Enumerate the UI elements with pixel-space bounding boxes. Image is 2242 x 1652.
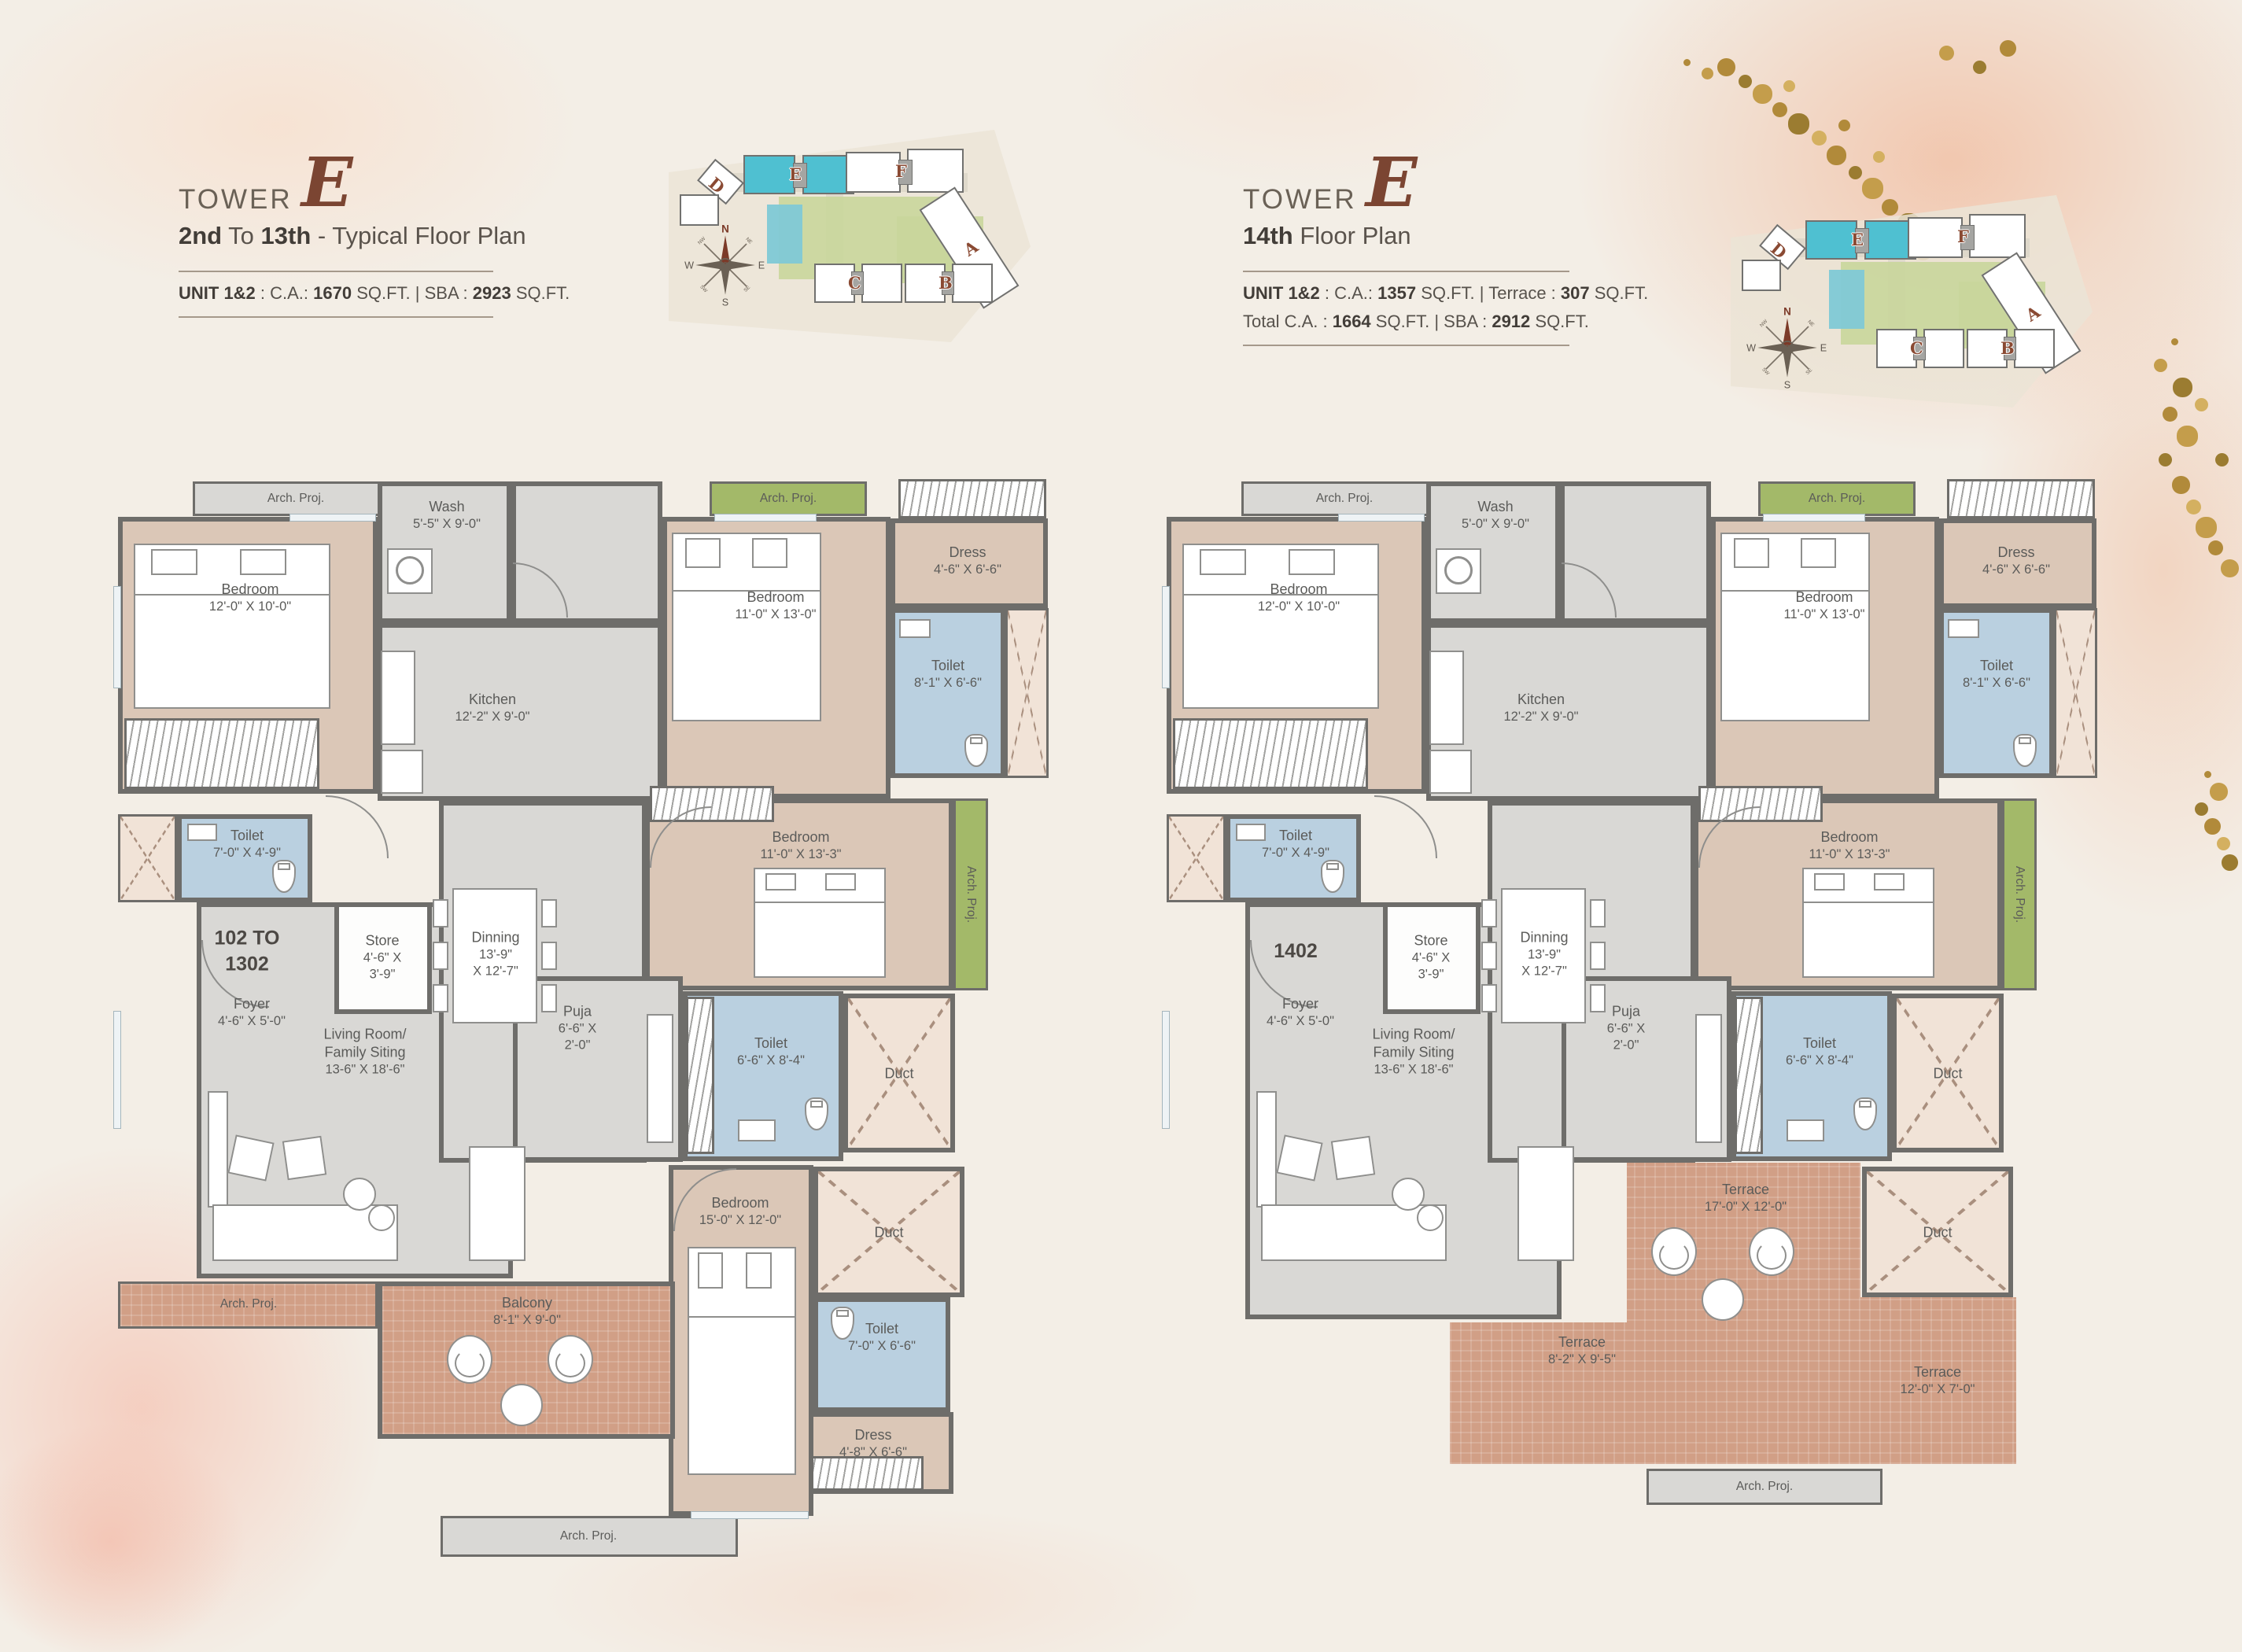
left-area-stats: UNIT 1&2 : C.A.: 1670 SQ.FT. | SBA : 292… bbox=[179, 283, 570, 304]
toilet-mid-label: Toilet6'-6" X 8'-4" bbox=[737, 1034, 805, 1069]
toilet-master-label: Toilet8'-1" X 6'-6" bbox=[1963, 657, 2030, 691]
armchair bbox=[1276, 1134, 1322, 1181]
dining-chair bbox=[541, 899, 557, 927]
right-divider-top bbox=[1243, 271, 1569, 272]
tower-f-block bbox=[1969, 214, 2026, 258]
tower-e-label: E bbox=[1851, 230, 1864, 249]
bed bbox=[1802, 868, 1934, 978]
compass-w: W bbox=[1746, 343, 1756, 354]
right-plan-header: TOWER E 14th Floor Plan UNIT 1&2 : C.A.:… bbox=[1243, 167, 1613, 356]
bed bbox=[134, 544, 330, 709]
armchair bbox=[282, 1136, 326, 1180]
lounge-chair bbox=[447, 1335, 492, 1384]
window bbox=[1162, 586, 1170, 688]
terrace-side-label: Terrace12'-0" X 7'-0" bbox=[1900, 1363, 1975, 1398]
shaft bbox=[2054, 608, 2097, 778]
right-tower-letter: E bbox=[1366, 143, 1418, 223]
door-swing bbox=[326, 795, 389, 858]
dining-chair bbox=[1590, 984, 1606, 1012]
lounge-chair bbox=[548, 1335, 593, 1384]
compass-rose-icon: N S W E NW NE SW SE bbox=[683, 223, 768, 308]
dining-chair bbox=[1590, 899, 1606, 927]
lounge-chair bbox=[1749, 1227, 1794, 1276]
living-room-label: Living Room/ Family Siting13-6" X 18'-6" bbox=[1372, 1025, 1455, 1078]
round-table bbox=[1702, 1278, 1744, 1321]
door-swing bbox=[1374, 795, 1437, 858]
dining-chair bbox=[1481, 899, 1497, 927]
foyer-label: Foyer4'-6" X 5'-0" bbox=[218, 995, 286, 1030]
wardrobe bbox=[1173, 718, 1368, 789]
tower-d-block bbox=[680, 194, 719, 226]
right-plan-subtitle: 14th Floor Plan bbox=[1243, 222, 1411, 250]
tower-b-label: B bbox=[2000, 338, 2015, 358]
bedroom-2-label: Bedroom11'-0" X 13'-0" bbox=[735, 588, 816, 623]
side-table bbox=[343, 1178, 376, 1211]
arch-proj-label: Arch. Proj. bbox=[267, 491, 324, 507]
right-area-stats-1: UNIT 1&2 : C.A.: 1357 SQ.FT. | Terrace :… bbox=[1243, 283, 1648, 304]
tower-b-block bbox=[952, 264, 993, 303]
puja-cabinet bbox=[1695, 1014, 1722, 1143]
tower-e-block-highlighted bbox=[743, 155, 795, 194]
bed bbox=[688, 1247, 796, 1475]
dining-chair bbox=[433, 984, 448, 1012]
tv-unit bbox=[1256, 1091, 1277, 1208]
left-plan-header: TOWER E 2nd To 13th - Typical Floor Plan… bbox=[179, 167, 548, 356]
compass-rose-icon: N S W E NW NE SW SE bbox=[1745, 305, 1830, 390]
tv-unit bbox=[208, 1091, 228, 1208]
brochure-page: TOWER E 2nd To 13th - Typical Floor Plan… bbox=[0, 0, 2242, 1652]
wardrobe bbox=[806, 1456, 924, 1491]
bedroom-3-label: Bedroom11'-0" X 13'-3" bbox=[760, 828, 841, 863]
tower-c-block bbox=[861, 264, 902, 303]
window bbox=[1338, 514, 1425, 522]
compass-se: SE bbox=[743, 285, 751, 293]
dining-chair bbox=[541, 984, 557, 1012]
compass-sw: SW bbox=[1761, 367, 1770, 376]
compass-e: E bbox=[1820, 343, 1827, 354]
site-pool bbox=[1829, 270, 1864, 329]
arch-proj-label: Arch. Proj. bbox=[2012, 866, 2027, 923]
arch-proj-label: Arch. Proj. bbox=[1736, 1479, 1793, 1495]
window bbox=[1162, 1011, 1170, 1129]
wash-label: Wash5'-0" X 9'-0" bbox=[1462, 498, 1529, 533]
dining-chair bbox=[1590, 942, 1606, 970]
dinning-label: Dinning13'-9" X 12'-7" bbox=[1520, 928, 1568, 979]
dinning-label: Dinning13'-9" X 12'-7" bbox=[471, 928, 519, 979]
tower-b-label: B bbox=[938, 273, 953, 293]
arch-proj-label: Arch. Proj. bbox=[963, 866, 979, 923]
lounge-chair bbox=[1651, 1227, 1697, 1276]
balcony-label: Balcony8'-1" X 9'-0" bbox=[493, 1294, 561, 1329]
left-tower-letter: E bbox=[301, 143, 353, 223]
right-divider-bottom bbox=[1243, 345, 1569, 346]
window bbox=[113, 586, 121, 688]
toilet-mid-label: Toilet6'-6" X 8'-4" bbox=[1786, 1034, 1853, 1069]
compass-e: E bbox=[758, 260, 765, 271]
living-room-label: Living Room/ Family Siting13-6" X 18'-6" bbox=[323, 1025, 406, 1078]
arch-proj-label: Arch. Proj. bbox=[560, 1528, 617, 1544]
kitchen-label: Kitchen12'-2" X 9'-0" bbox=[455, 691, 529, 725]
window bbox=[714, 514, 817, 522]
toilet-common-label: Toilet7'-0" X 4'-9" bbox=[1262, 827, 1329, 861]
kitchen-stove bbox=[1429, 750, 1472, 794]
dress-1-label: Dress4'-6" X 6'-6" bbox=[1982, 544, 2050, 578]
unit-number: 1402 bbox=[1274, 938, 1318, 964]
dining-chair bbox=[433, 899, 448, 927]
shaft bbox=[1005, 608, 1049, 778]
left-plan-subtitle: 2nd To 13th - Typical Floor Plan bbox=[179, 222, 526, 250]
window bbox=[691, 1511, 809, 1519]
armchair bbox=[1331, 1136, 1375, 1180]
duct-label: Duct bbox=[884, 1064, 913, 1082]
kitchen-counter bbox=[381, 651, 415, 745]
bed bbox=[1182, 544, 1379, 709]
unit-number: 102 TO 1302 bbox=[215, 926, 280, 977]
dining-chair bbox=[433, 942, 448, 970]
wardrobe bbox=[1947, 479, 2095, 518]
compass-n: N bbox=[721, 223, 729, 235]
left-divider-bottom bbox=[179, 316, 493, 318]
site-pool bbox=[767, 205, 802, 264]
tower-c-label: C bbox=[848, 273, 861, 293]
toilet-master-label: Toilet8'-1" X 6'-6" bbox=[914, 657, 982, 691]
arch-proj-label: Arch. Proj. bbox=[760, 491, 817, 507]
bedroom-3-label: Bedroom11'-0" X 13'-3" bbox=[1809, 828, 1890, 863]
window bbox=[289, 514, 376, 522]
duct-label: Duct bbox=[1933, 1064, 1962, 1082]
round-table bbox=[500, 1384, 543, 1426]
tower-f-label: F bbox=[1957, 227, 1969, 246]
sofa bbox=[1517, 1146, 1574, 1261]
compass-sw: SW bbox=[699, 284, 708, 293]
toilet-bed4-label: Toilet7'-0" X 6'-6" bbox=[848, 1320, 916, 1355]
site-key-map-right: D E F A C B N S W E NW bbox=[1731, 195, 2093, 407]
compass-s: S bbox=[722, 297, 728, 308]
dress-1-label: Dress4'-6" X 6'-6" bbox=[934, 544, 1001, 578]
puja-cabinet bbox=[647, 1014, 673, 1143]
tower-f-block bbox=[846, 152, 901, 193]
shower-screen bbox=[1735, 997, 1763, 1154]
tower-f-block bbox=[907, 149, 964, 193]
tower-d-block bbox=[1742, 260, 1781, 291]
shower-screen bbox=[686, 997, 714, 1154]
gold-foliage-top-right bbox=[1683, 59, 1691, 66]
right-tower-title: TOWER bbox=[1243, 184, 1357, 216]
side-table bbox=[368, 1204, 395, 1231]
tower-f-block bbox=[1908, 217, 1963, 258]
terrace-bottom-label: Terrace8'-2" X 9'-5" bbox=[1548, 1333, 1616, 1368]
gold-foliage-right-edge bbox=[2171, 338, 2178, 345]
bedroom-2-label: Bedroom11'-0" X 13'-0" bbox=[1783, 588, 1864, 623]
arch-proj-label: Arch. Proj. bbox=[1809, 491, 1865, 507]
bed bbox=[672, 533, 821, 721]
compass-n: N bbox=[1783, 306, 1791, 318]
dress-2-label: Dress4'-8" X 6'-6" bbox=[839, 1426, 907, 1461]
wash-basin bbox=[1787, 1119, 1824, 1141]
dining-chair bbox=[1481, 942, 1497, 970]
tower-e-block-highlighted bbox=[1805, 220, 1857, 260]
window bbox=[113, 1011, 121, 1129]
tower-f-label: F bbox=[895, 161, 907, 181]
bed bbox=[1720, 533, 1870, 721]
compass-s: S bbox=[1784, 379, 1790, 390]
toilet-common-label: Toilet7'-0" X 4'-9" bbox=[213, 827, 281, 861]
duct-label: Duct bbox=[874, 1223, 903, 1241]
dining-chair bbox=[541, 942, 557, 970]
duct-label: Duct bbox=[1923, 1223, 1952, 1241]
wardrobe bbox=[650, 786, 774, 822]
arch-proj-label: Arch. Proj. bbox=[1316, 491, 1373, 507]
washing-machine bbox=[387, 548, 433, 594]
gold-foliage-right-mid bbox=[2204, 771, 2211, 778]
wardrobe bbox=[898, 479, 1046, 518]
flue-shaft bbox=[118, 814, 177, 902]
bedroom-1-label: Bedroom12'-0" X 10'-0" bbox=[209, 581, 291, 615]
compass-se: SE bbox=[1805, 367, 1813, 376]
kitchen-label: Kitchen12'-2" X 9'-0" bbox=[1503, 691, 1578, 725]
kitchen-stove bbox=[381, 750, 423, 794]
puja-label: Puja6'-6" X 2'-0" bbox=[1607, 1002, 1645, 1053]
site-key-map-left: D E F A C B N S W E NW bbox=[669, 130, 1031, 342]
tower-e-label: E bbox=[789, 164, 802, 184]
left-divider-top bbox=[179, 271, 493, 272]
right-area-stats-2: Total C.A. : 1664 SQ.FT. | SBA : 2912 SQ… bbox=[1243, 312, 1589, 332]
kitchen-counter bbox=[1429, 651, 1464, 745]
store-label: Store4'-6" X 3'-9" bbox=[363, 931, 401, 983]
store-label: Store4'-6" X 3'-9" bbox=[1412, 931, 1450, 983]
wash-label: Wash5'-5" X 9'-0" bbox=[413, 498, 481, 533]
flue-shaft bbox=[1167, 814, 1226, 902]
bedroom-4-label: Bedroom15'-0" X 12'-0" bbox=[699, 1194, 781, 1229]
compass-w: W bbox=[684, 260, 694, 271]
wardrobe bbox=[124, 718, 319, 789]
foyer-label: Foyer4'-6" X 5'-0" bbox=[1267, 995, 1334, 1030]
tower-b-block bbox=[2014, 329, 2055, 368]
tower-c-block bbox=[1923, 329, 1964, 368]
washing-machine bbox=[1436, 548, 1481, 594]
floor-plan-14th: Arch. Proj. Bedroom12'-0" X 10'-0" Wash5… bbox=[1141, 468, 2097, 1569]
wash-basin bbox=[899, 619, 931, 638]
wardrobe bbox=[1698, 786, 1823, 822]
floor-plan-typical: Arch. Proj. Bedroom12'-0" X 10'-0" Wash5… bbox=[93, 468, 1049, 1569]
wash-basin bbox=[738, 1119, 776, 1141]
window bbox=[1763, 514, 1865, 522]
wash-basin bbox=[1948, 619, 1979, 638]
bedroom-1-label: Bedroom12'-0" X 10'-0" bbox=[1258, 581, 1340, 615]
left-tower-title: TOWER bbox=[179, 184, 293, 216]
terrace-main-label: Terrace17'-0" X 12'-0" bbox=[1705, 1181, 1787, 1215]
bed bbox=[754, 868, 886, 978]
side-table bbox=[1392, 1178, 1425, 1211]
dining-chair bbox=[1481, 984, 1497, 1012]
arch-proj-label: Arch. Proj. bbox=[220, 1296, 277, 1312]
sofa bbox=[469, 1146, 525, 1261]
puja-label: Puja6'-6" X 2'-0" bbox=[559, 1002, 596, 1053]
side-table bbox=[1417, 1204, 1444, 1231]
armchair bbox=[227, 1134, 274, 1181]
tower-c-label: C bbox=[1910, 338, 1923, 358]
